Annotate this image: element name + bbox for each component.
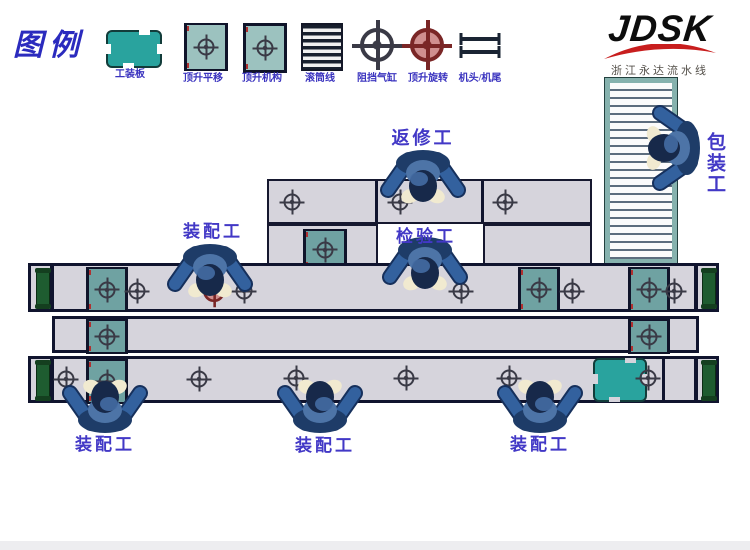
- legend-label-lift-mechanism: 顶升机构: [231, 69, 293, 84]
- worker-figure-assembly-2: [276, 377, 364, 437]
- bottom-strip: [0, 541, 750, 550]
- stop-cylinder-icon: [284, 194, 301, 211]
- lift-mechanism: [628, 319, 670, 354]
- label-assembly-1: 装配工: [72, 430, 138, 455]
- crosshair-icon: [257, 40, 274, 57]
- stop-cylinder-icon: [497, 194, 514, 211]
- platform-divider: [375, 181, 378, 222]
- worker-figure-assembly-3: [496, 377, 584, 437]
- stop-cylinder-icon: [640, 370, 657, 387]
- head-tail-icon: [455, 31, 505, 59]
- label-rework: 返修工: [388, 124, 458, 150]
- section-divider: [662, 356, 665, 403]
- stop-cylinder-icon: [564, 283, 581, 300]
- assembly-line-diagram: 图例 工装板 顶升平移 顶升机构 滚筒线 阻挡气缸 顶升旋转 机头/机尾 JDS…: [0, 0, 750, 550]
- worker-figure-assembly-1: [61, 377, 149, 437]
- label-assembly-3: 装配工: [507, 430, 573, 455]
- roller-line-icon: [301, 23, 343, 71]
- lift-mechanism-icon: [243, 23, 287, 73]
- worker-figure-rework: [379, 146, 467, 206]
- legend-label-lift-translate: 顶升平移: [172, 69, 234, 84]
- stop-cylinder-icon: [398, 370, 415, 387]
- logo-swoosh: [602, 44, 718, 60]
- crosshair-icon: [99, 328, 116, 345]
- lift-mechanism: [86, 319, 128, 354]
- crosshair-icon: [531, 281, 548, 298]
- lift-mechanism: [518, 267, 560, 312]
- crosshair-icon: [641, 328, 658, 345]
- label-inspection: 检验工: [392, 222, 460, 247]
- logo-tagline: 浙江永达流水线: [598, 62, 722, 78]
- pallet-icon: [106, 30, 162, 68]
- stop-cylinder-icon: [666, 283, 683, 300]
- worker-figure-assembly-top: [166, 240, 254, 300]
- legend-label-pallet: 工装板: [100, 65, 160, 80]
- endcap-divider: [694, 356, 698, 403]
- stop-cylinder-icon: [129, 283, 146, 300]
- legend-label-roller-line: 滚筒线: [293, 69, 347, 84]
- crosshair-icon: [99, 281, 116, 298]
- worker-figure-packing: [644, 104, 704, 192]
- line-head-roller: [36, 269, 50, 308]
- legend-label-lift-rotate: 顶升旋转: [401, 69, 455, 84]
- legend-label-stop-cylinder: 阻挡气缸: [350, 69, 404, 84]
- legend-title: 图例: [13, 20, 85, 64]
- crosshair-icon: [641, 281, 658, 298]
- lift-mechanism: [86, 267, 128, 312]
- label-assembly-top: 装配工: [180, 217, 246, 242]
- crosshair-icon: [198, 39, 215, 56]
- endcap-divider: [694, 263, 698, 312]
- line-tail-roller: [702, 269, 716, 308]
- legend-label-head-tail: 机头/机尾: [450, 69, 510, 84]
- stop-cylinder-icon: [191, 371, 208, 388]
- platform-divider: [481, 181, 484, 222]
- label-packing: 包装工: [701, 124, 728, 202]
- lift-translate-icon: [184, 23, 228, 71]
- stop-cylinder-icon: [360, 28, 394, 62]
- line-head-roller: [36, 361, 50, 400]
- conveyor-line-2: [52, 316, 699, 353]
- label-assembly-2: 装配工: [292, 431, 358, 456]
- crosshair-icon: [317, 241, 334, 258]
- lift-rotate-icon: [410, 28, 444, 62]
- line-tail-roller: [702, 361, 716, 400]
